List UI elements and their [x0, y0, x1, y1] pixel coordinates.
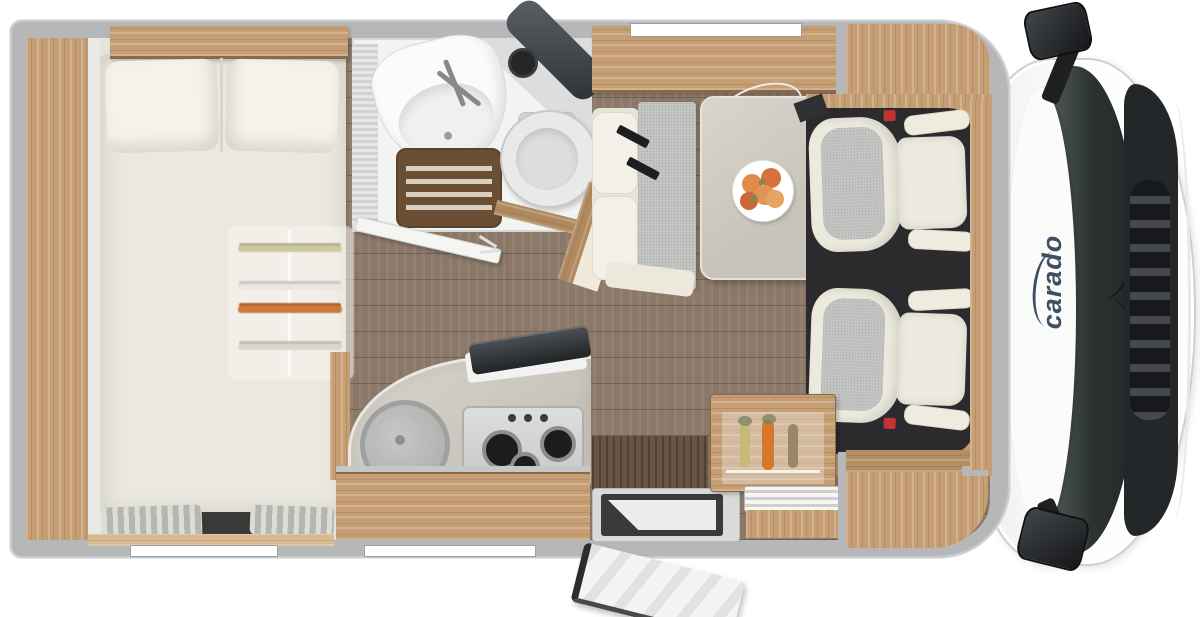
bottom-window [364, 545, 536, 557]
fruit-icon [766, 190, 784, 208]
kitchen-cabinet-face [336, 472, 590, 540]
cab-over-shelf [846, 24, 990, 102]
overhead-cabinet [110, 26, 348, 59]
seat-armrest [908, 229, 975, 252]
bottom-window [130, 545, 278, 557]
hanger-icon [238, 246, 342, 252]
side-mirror-top [1022, 0, 1095, 62]
cab-step-panel [846, 472, 988, 548]
seat-armrest [903, 404, 971, 432]
hob-knob-icon [524, 414, 532, 422]
cab-side-trim [970, 100, 992, 470]
cab-seat-passenger [808, 109, 981, 257]
fridge-base [746, 510, 842, 538]
front-bumper-line [1156, 100, 1191, 520]
toilet-seat [516, 128, 578, 190]
motorhome-floorplan: carado [0, 0, 1200, 617]
seat-cushion [896, 312, 967, 406]
seat-backrest-fabric [820, 126, 886, 240]
sink-lid-knob [395, 435, 405, 445]
top-window [630, 23, 802, 37]
hob-knob-icon [508, 414, 516, 422]
shower-duckboard [396, 148, 502, 228]
seatbelt-buckle-icon [883, 418, 895, 429]
duckboard-slats [406, 158, 492, 218]
brand-logo: carado [1032, 212, 1072, 352]
fruit-plate [732, 160, 794, 222]
fruit-leaf-icon [751, 195, 757, 201]
seatbelt-buckle-icon [883, 110, 895, 121]
fridge-shelf-line [726, 470, 820, 473]
pillow [105, 59, 219, 154]
greens-icon [738, 416, 752, 426]
carrot-icon [740, 424, 750, 468]
mattress-crease [220, 58, 223, 152]
wardrobe [26, 38, 88, 540]
greens-icon [762, 414, 776, 424]
hanger-icon [238, 306, 342, 313]
bench-headrest [592, 112, 638, 194]
seat-cushion [896, 136, 967, 230]
hob-knob-icon [540, 414, 548, 422]
showerhead-icon [508, 48, 538, 78]
pillow [225, 59, 339, 154]
carrot-icon [762, 420, 774, 470]
carrot-icon [788, 424, 798, 468]
curtain [250, 505, 335, 538]
kitchen-side-panel [330, 352, 350, 480]
seat-armrest [903, 109, 971, 137]
fruit-leaf-icon [759, 179, 765, 185]
entry-recess [592, 436, 708, 490]
burner-icon [540, 426, 576, 462]
hanger-icon [238, 344, 342, 350]
hanger-icon [238, 284, 342, 290]
seat-armrest [908, 288, 975, 311]
fridge-vent-slats [744, 486, 846, 512]
fridge-glass-front [722, 412, 824, 484]
dinette-bench [638, 102, 696, 290]
